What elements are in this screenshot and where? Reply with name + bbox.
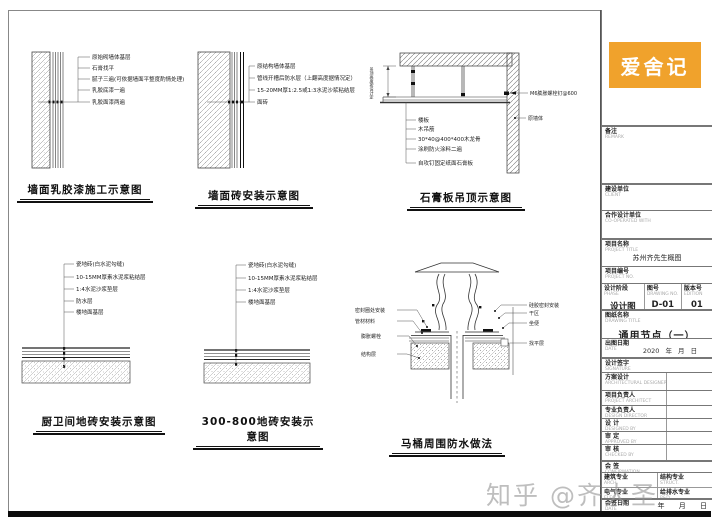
drawing-no-value: D-01 — [647, 300, 679, 309]
brand-logo: 爱舍记 — [609, 42, 701, 88]
field-label: 备注 — [605, 128, 709, 135]
field-sign-date: 会签日期 DATE 年 月 日 — [602, 498, 712, 512]
callout: 自攻钉固定纸面石膏板 — [418, 159, 474, 167]
field-designed-by: 设 计 DESIGNED BY — [602, 418, 712, 431]
drawing-title-value: 通用节点（一） — [605, 327, 709, 338]
field-phase: 设计阶段 PHASE 设计图 — [602, 284, 644, 309]
field-label: 会签日期 — [605, 500, 629, 507]
field-sublabel: REMARK — [605, 135, 709, 140]
field-date: 出图日期 DATE 2020 年 月 日 — [602, 338, 712, 357]
callout: 乳胶底漆一遍 — [92, 86, 126, 94]
field-label: 方案设计 — [605, 374, 709, 381]
edition-value: 01 — [684, 300, 710, 309]
cad-sheet: 原始砌墙体基层 石膏找平 腻子三遍(可依据墙面平整度酌情处理) 乳胶底漆一遍 乳… — [0, 0, 720, 525]
callout: 面砖 — [257, 98, 269, 106]
callout: 木吊筋 — [418, 125, 435, 133]
field-sublabel: CO-OPERATED WITH — [605, 219, 709, 224]
field-project-no: 项目编号 PROJECT NO. — [602, 266, 712, 283]
field-label: 专业负责人 — [605, 407, 709, 414]
field-label: 项目负责人 — [605, 392, 709, 399]
field-label: 版本号 — [684, 285, 710, 292]
field-label: 设 计 — [605, 420, 709, 427]
callout: 石膏找平 — [92, 64, 115, 72]
field-edition: 版本号 EDITION 01 — [681, 284, 712, 309]
field-label: 合作设计单位 — [605, 212, 709, 219]
detail-title-wall-paint: 墙面乳胶漆施工示意图 — [20, 182, 150, 200]
callout: 膨胀螺栓 — [361, 333, 381, 340]
project-title-value: 苏州齐先生概图 — [605, 253, 709, 263]
field-project-title: 项目名称 PROJECT TITLE 苏州齐先生概图 — [602, 238, 712, 266]
callout: 密封圈处安装 — [355, 307, 385, 314]
field-label: 建筑专业 — [604, 474, 655, 481]
field-confirmation: 会 签 CONFIRMATION — [602, 460, 712, 472]
discipline-plumbing: 给排水专业 P&D — [657, 487, 712, 498]
callout: 坐便 — [529, 320, 539, 327]
callout: 10-15MM厚素水泥浆粘结层 — [76, 273, 146, 281]
detail-title-bath-floor: 厨卫间地砖安装示意图 — [36, 414, 162, 432]
callout: 楼地面基层 — [76, 308, 104, 316]
callout: 原墙体 — [528, 115, 543, 122]
detail-wall-tile-drawing: 原结构墙体基层 管线开槽后防水层（上翻高度据情况定） 15-20MM厚1:2.5… — [192, 46, 372, 186]
field-drawing-no: 图号 DRAWING NO. D-01 — [644, 284, 681, 309]
field-label: 建设单位 — [605, 186, 709, 193]
field-sublabel: PROJECT ARCHITECT — [605, 399, 709, 404]
field-sublabel: CLIENT — [605, 193, 709, 198]
discipline-elec: 电气专业 ELEC. — [602, 487, 657, 498]
callout: 15-20MM厚1:2.5或1:3水泥沙浆粘结层 — [257, 86, 355, 94]
field-partner: 合作设计单位 CO-OPERATED WITH — [602, 210, 712, 238]
field-label: 结构专业 — [660, 474, 710, 481]
field-label: 项目名称 — [605, 241, 709, 248]
callout: 1:4水泥沙浆垫层 — [248, 286, 290, 294]
field-sublabel: ARCH. — [604, 481, 655, 486]
detail-toilet-drawing: 密封圈处安装 管材材料 膨胀螺栓 结构层 硅胶密封安装 干区 坐便 找平层 — [353, 247, 598, 432]
titleblock-fields: 备注 REMARK 建设单位 CLIENT 合作设计单位 CO-OPERATED… — [602, 125, 712, 512]
callout: 瓷地砖(白水泥勾缝) — [76, 260, 124, 268]
field-label: 审 核 — [605, 446, 709, 453]
field-sublabel: CHECKED BY — [605, 453, 709, 458]
sign-date-value: 年 月 日 — [629, 501, 709, 511]
field-signature: 设计签字 SIGNATURE — [602, 357, 712, 372]
callout: 管材材料 — [355, 318, 375, 325]
field-drawing-title: 图纸名称 DRAWING TITLE 通用节点（一） — [602, 309, 712, 338]
field-label: 审 定 — [605, 433, 709, 440]
field-label: 图号 — [647, 285, 679, 292]
dim-note: 吊顶高度按设计定 — [370, 67, 375, 100]
callout: 楼板 — [418, 116, 430, 124]
field-remark: 备注 REMARK — [602, 125, 712, 183]
field-sublabel: PHASE — [604, 292, 642, 297]
date-value: 2020 年 月 日 — [630, 345, 710, 355]
callout: M6膨胀螺栓钉@600 — [530, 90, 577, 97]
detail-ceiling-drawing: 吊顶高度按设计定 M6膨胀螺栓钉@600 原墙体 楼板 木吊筋 30*40@40… — [358, 45, 600, 205]
discipline-struct: 结构专业 STRUCT. — [657, 473, 712, 487]
callout: 楼地面基层 — [248, 298, 276, 306]
field-project-architect: 项目负责人 PROJECT ARCHITECT — [602, 390, 712, 405]
field-client: 建设单位 CLIENT — [602, 183, 712, 210]
callout: 1:4水泥沙浆垫层 — [76, 285, 118, 293]
callout: 乳胶面漆两遍 — [92, 98, 126, 106]
field-label: 图纸名称 — [605, 312, 709, 319]
callout: 10-15MM厚素水泥浆粘结层 — [248, 274, 318, 282]
field-sublabel: EDITION — [684, 292, 710, 297]
confirmation-grid: 建筑专业 ARCH. 结构专业 STRUCT. 电气专业 ELEC. 给排水专业… — [602, 472, 712, 498]
detail-title-ceiling: 石膏板吊顶示意图 — [410, 190, 522, 208]
field-label: 设计阶段 — [604, 285, 642, 292]
field-sublabel: PROJECT NO. — [605, 275, 709, 280]
titleblock: 爱舍记 备注 REMARK 建设单位 CLIENT 合作设计单位 CO-OPER… — [601, 10, 712, 511]
detail-title-toilet: 马桶周围防水做法 — [392, 436, 502, 454]
callout: 管线开槽后防水层（上翻高度据情况定） — [257, 74, 356, 82]
field-scheme-designer: 方案设计 ARCHITECTURAL DESIGNER — [602, 372, 712, 390]
field-sublabel: ARCHITECTURAL DESIGNER — [605, 381, 709, 386]
discipline-arch: 建筑专业 ARCH. — [602, 473, 657, 487]
detail-floor-tile-drawing: 瓷地砖(白水泥勾缝) 10-15MM厚素水泥浆粘结层 1:4水泥沙浆垫层 楼地面… — [192, 250, 372, 410]
detail-title-wall-tile: 墙面砖安装示意图 — [198, 188, 310, 206]
field-discipline-chief: 专业负责人 DESIGN DIRECTOR — [602, 405, 712, 418]
field-sublabel: STRUCT. — [660, 481, 710, 486]
callout: 涂刷防火涂料二遍 — [418, 145, 463, 153]
field-label: 给排水专业 — [660, 489, 710, 496]
field-sublabel: DRAWING TITLE — [605, 319, 709, 324]
callout: 腻子三遍(可依据墙面平整度酌情处理) — [92, 75, 184, 83]
detail-title-floor-tile: 300-800地砖安装示意图 — [196, 414, 320, 447]
callout: 干区 — [529, 311, 539, 317]
field-label: 电气专业 — [604, 489, 655, 496]
callout: 原始砌墙体基层 — [92, 53, 131, 61]
callout: 瓷地砖(白水泥勾缝) — [248, 261, 296, 269]
callout: 找平层 — [529, 340, 544, 347]
field-approved-by: 审 定 APPROVED BY — [602, 431, 712, 444]
callout: 防水层 — [76, 297, 93, 305]
field-sublabel: DRAWING NO. — [647, 292, 679, 297]
field-label: 项目编号 — [605, 268, 709, 275]
detail-bath-floor-drawing: 瓷地砖(白水泥勾缝) 10-15MM厚素水泥浆粘结层 1:4水泥沙浆垫层 防水层… — [18, 250, 198, 410]
field-label: 会 签 — [605, 463, 709, 470]
callout: 30*40@400*400木龙骨 — [418, 135, 481, 143]
phase-value: 设计图 — [604, 300, 642, 309]
callout: 硅胶密封安装 — [529, 302, 559, 309]
field-checked-by: 审 核 CHECKED BY — [602, 444, 712, 460]
sheet-bottom-bar — [8, 511, 711, 517]
field-label: 设计签字 — [605, 360, 709, 367]
field-phase-row: 设计阶段 PHASE 设计图 图号 DRAWING NO. D-01 版本号 E… — [602, 283, 712, 309]
detail-wall-paint-drawing: 原始砌墙体基层 石膏找平 腻子三遍(可依据墙面平整度酌情处理) 乳胶底漆一遍 乳… — [18, 46, 203, 186]
callout: 结构层 — [361, 351, 376, 358]
callout: 原结构墙体基层 — [257, 62, 296, 70]
